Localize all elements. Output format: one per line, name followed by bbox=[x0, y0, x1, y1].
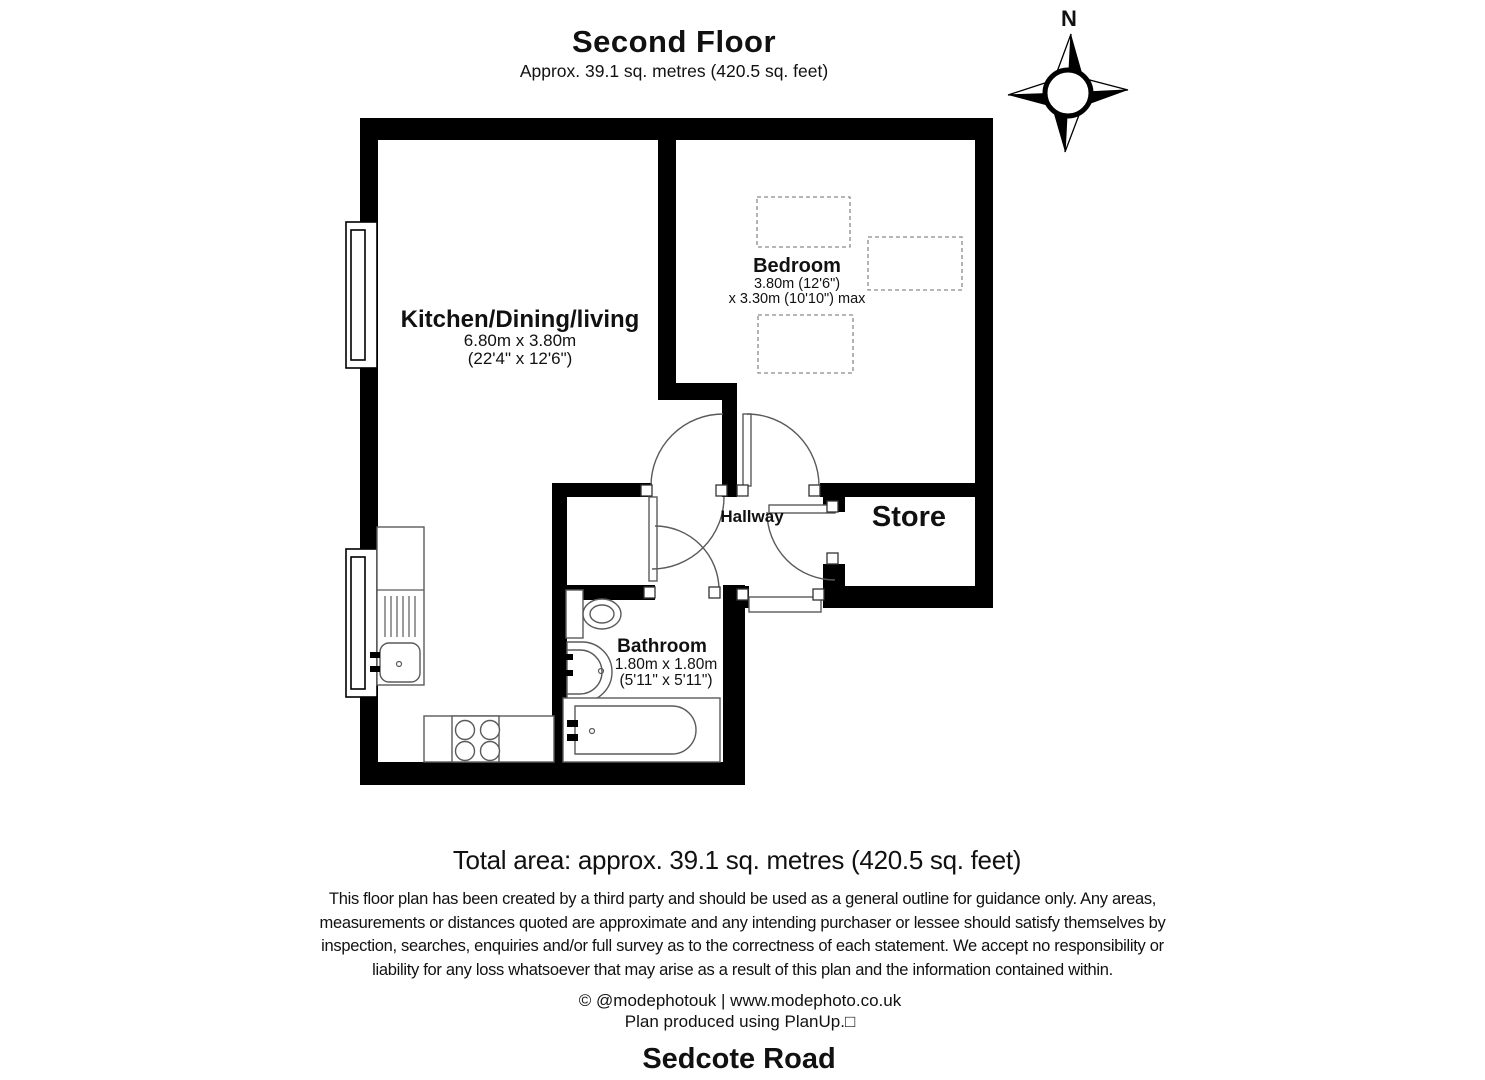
hallway-label: Hallway bbox=[720, 507, 783, 527]
disclaimer-line: measurements or distances quoted are app… bbox=[0, 912, 1485, 936]
compass-north-label: N bbox=[1061, 6, 1077, 32]
disclaimer: This floor plan has been created by a th… bbox=[0, 888, 1485, 982]
kitchen-hob bbox=[424, 716, 554, 762]
bathroom-label: Bathroom bbox=[617, 636, 707, 658]
address-title: Sedcote Road bbox=[642, 1043, 835, 1076]
door-hallway-swing bbox=[649, 497, 724, 581]
compass-icon bbox=[1008, 34, 1128, 152]
door-bathroom bbox=[655, 526, 719, 590]
bedroom-label: Bedroom bbox=[753, 255, 841, 278]
door-kitchen-hallway bbox=[651, 414, 723, 486]
window-kitchen-upper bbox=[346, 222, 377, 368]
window-kitchen-lower bbox=[346, 549, 377, 697]
credit-text: © @modephotouk | www.modephoto.co.uk bbox=[579, 991, 901, 1011]
door-jambs bbox=[641, 485, 838, 600]
bedroom-dim-2: x 3.30m (10'10") max bbox=[729, 291, 866, 307]
door-entrance bbox=[749, 597, 821, 612]
disclaimer-line: liability for any loss whatsoever that m… bbox=[0, 959, 1485, 983]
bathtub bbox=[563, 698, 720, 762]
produced-text: Plan produced using PlanUp.□ bbox=[625, 1012, 855, 1032]
disclaimer-line: inspection, searches, enquiries and/or f… bbox=[0, 935, 1485, 959]
interior-walls bbox=[552, 138, 993, 785]
kitchen-dim-imperial: (22'4" x 12'6") bbox=[468, 349, 573, 369]
disclaimer-line: This floor plan has been created by a th… bbox=[0, 888, 1485, 912]
total-area-text: Total area: approx. 39.1 sq. metres (420… bbox=[453, 845, 1021, 876]
kitchen-label: Kitchen/Dining/living bbox=[401, 306, 640, 334]
floor-plan-page: Second Floor Approx. 39.1 sq. metres (42… bbox=[0, 0, 1485, 1080]
door-bedroom bbox=[743, 414, 819, 486]
bathroom-dim-imperial: (5'11" x 5'11") bbox=[619, 672, 712, 690]
store-label: Store bbox=[872, 501, 946, 534]
basin bbox=[563, 642, 612, 702]
kitchen-dim-metric: 6.80m x 3.80m bbox=[464, 331, 576, 351]
bedroom-dim-1: 3.80m (12'6") bbox=[754, 276, 840, 292]
